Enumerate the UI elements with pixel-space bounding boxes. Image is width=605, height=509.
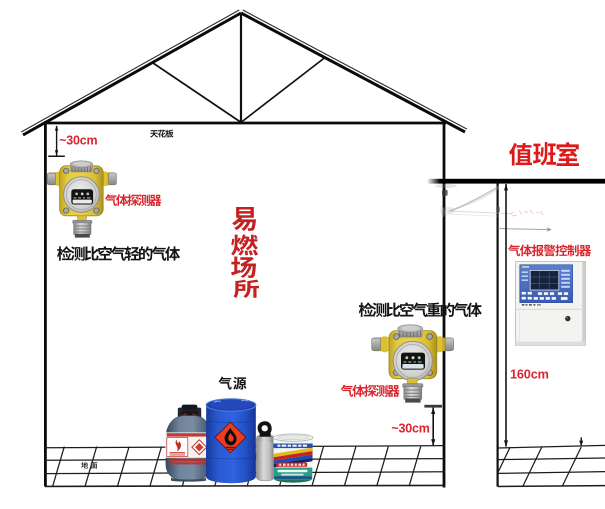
svg-text:160cm: 160cm — [510, 367, 549, 381]
svg-text:~30cm: ~30cm — [59, 133, 97, 147]
svg-text:~30cm: ~30cm — [391, 422, 429, 436]
